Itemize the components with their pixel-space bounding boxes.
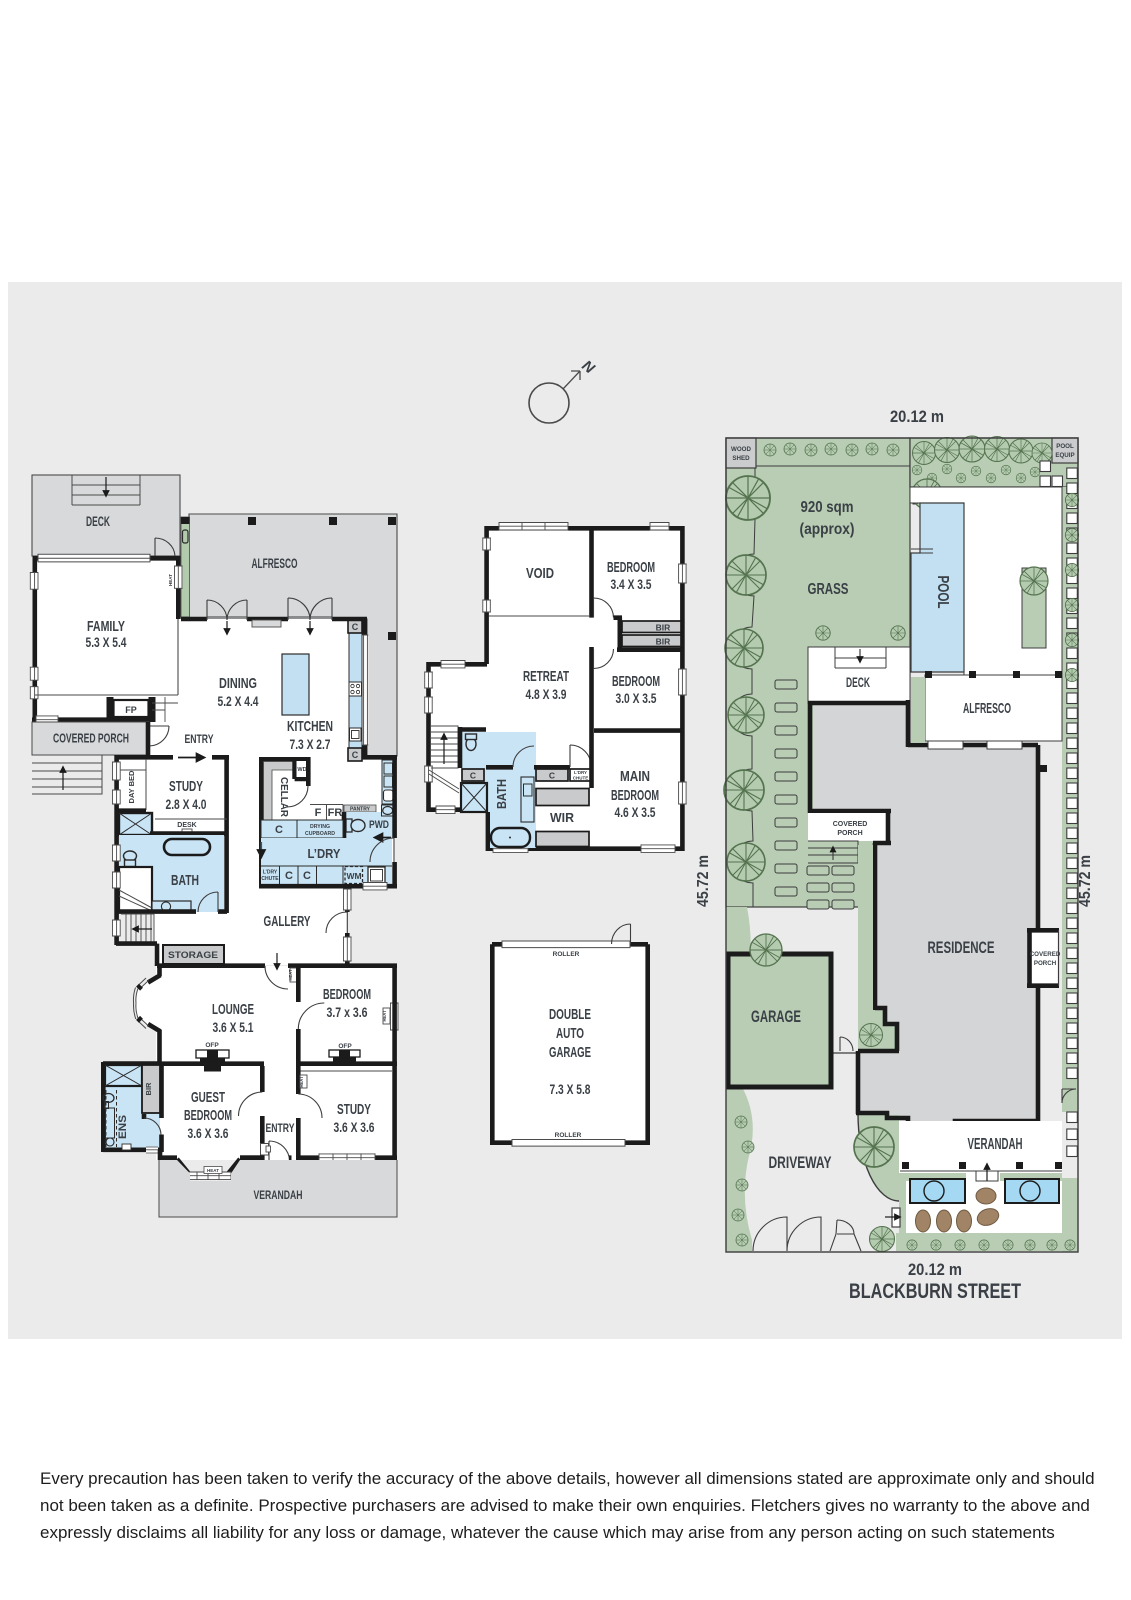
svg-text:ROLLER: ROLLER [555, 1132, 582, 1139]
svg-text:20.12 m: 20.12 m [890, 407, 944, 426]
svg-text:BEDROOM: BEDROOM [607, 559, 655, 576]
svg-text:BIR: BIR [656, 623, 671, 633]
svg-text:MAIN: MAIN [620, 768, 650, 785]
svg-text:RESIDENCE: RESIDENCE [928, 938, 995, 957]
svg-text:WM: WM [346, 871, 361, 881]
svg-text:C: C [275, 824, 283, 836]
svg-text:L’DRY: L’DRY [308, 846, 341, 861]
svg-text:PANTRY: PANTRY [350, 807, 371, 813]
svg-text:L’DRY: L’DRY [263, 870, 278, 876]
svg-text:DESK: DESK [177, 822, 196, 829]
svg-text:BATH: BATH [171, 872, 199, 889]
svg-text:AUTO: AUTO [556, 1025, 584, 1042]
svg-text:20.12 m: 20.12 m [908, 1260, 962, 1279]
svg-text:RETREAT: RETREAT [523, 668, 569, 685]
svg-text:7.3 X 5.8: 7.3 X 5.8 [550, 1082, 591, 1097]
svg-text:5.2 X 4.4: 5.2 X 4.4 [218, 694, 259, 709]
svg-text:FAMILY: FAMILY [87, 618, 125, 635]
svg-text:GALLERY: GALLERY [264, 913, 311, 930]
svg-text:BEDROOM: BEDROOM [184, 1107, 232, 1124]
svg-text:7.3 X 2.7: 7.3 X 2.7 [290, 737, 331, 752]
svg-text:DRYING: DRYING [310, 824, 330, 830]
svg-text:C: C [352, 622, 359, 632]
svg-text:5.3 X 5.4: 5.3 X 5.4 [86, 635, 127, 650]
svg-text:C: C [303, 870, 311, 882]
svg-text:POOL: POOL [934, 576, 951, 609]
svg-text:920 sqm: 920 sqm [801, 499, 854, 516]
svg-text:FR: FR [328, 807, 343, 819]
svg-text:CHUTE: CHUTE [261, 876, 279, 882]
svg-text:C: C [470, 771, 476, 781]
svg-text:GUEST: GUEST [191, 1089, 225, 1106]
svg-text:HEAT: HEAT [382, 1010, 387, 1022]
svg-text:PORCH: PORCH [1034, 960, 1057, 967]
svg-text:OFP: OFP [338, 1043, 352, 1050]
svg-text:L’DRY: L’DRY [574, 770, 587, 775]
svg-text:ENTRY: ENTRY [266, 1123, 295, 1135]
svg-text:KITCHEN: KITCHEN [287, 718, 333, 735]
svg-text:ALFRESCO: ALFRESCO [963, 700, 1011, 717]
svg-text:4.8 X 3.9: 4.8 X 3.9 [526, 687, 567, 702]
svg-text:STUDY: STUDY [337, 1101, 371, 1118]
svg-text:not been taken as a definite.: not been taken as a definite. Prospectiv… [40, 1496, 1090, 1515]
svg-text:C: C [352, 750, 359, 760]
svg-text:3.0 X 3.5: 3.0 X 3.5 [616, 691, 657, 706]
svg-text:FP: FP [125, 705, 137, 715]
svg-text:BATH: BATH [494, 779, 509, 809]
svg-text:3.4 X 3.5: 3.4 X 3.5 [611, 577, 652, 592]
svg-text:GARAGE: GARAGE [751, 1007, 801, 1026]
svg-text:DRIVEWAY: DRIVEWAY [769, 1153, 832, 1172]
svg-text:2.8 X 4.0: 2.8 X 4.0 [166, 797, 207, 812]
svg-text:BIR: BIR [656, 637, 671, 647]
svg-text:PWD: PWD [369, 819, 389, 831]
svg-text:EQUIP: EQUIP [1055, 452, 1074, 459]
svg-text:CHUTE: CHUTE [573, 776, 589, 781]
svg-text:45.72 m: 45.72 m [1077, 855, 1094, 907]
svg-text:GRASS: GRASS [808, 581, 849, 598]
svg-text:STUDY: STUDY [169, 778, 203, 795]
svg-text:DECK: DECK [86, 514, 110, 529]
svg-text:3.6 X 3.6: 3.6 X 3.6 [334, 1120, 375, 1135]
svg-text:ENTRY: ENTRY [185, 734, 214, 746]
svg-text:COVERED: COVERED [1030, 951, 1061, 958]
svg-text:STORAGE: STORAGE [168, 950, 218, 961]
svg-text:POOL: POOL [1056, 443, 1074, 450]
svg-text:BEDROOM: BEDROOM [611, 787, 659, 804]
svg-text:3.6 X 3.6: 3.6 X 3.6 [188, 1126, 229, 1141]
svg-text:HEAT: HEAT [288, 969, 293, 981]
svg-text:WOOD: WOOD [731, 446, 751, 453]
svg-text:C: C [285, 870, 293, 882]
svg-text:expressly disclaims all liabil: expressly disclaims all liability for an… [40, 1523, 1055, 1542]
svg-text:HEAT: HEAT [168, 574, 173, 586]
svg-text:C: C [549, 771, 555, 781]
svg-text:CELLAR: CELLAR [278, 777, 289, 818]
svg-text:DOUBLE: DOUBLE [549, 1006, 591, 1023]
svg-text:COVERED: COVERED [833, 821, 868, 828]
svg-text:Every precaution has been take: Every precaution has been taken to verif… [40, 1469, 1095, 1488]
svg-text:DAY BED: DAY BED [127, 770, 136, 804]
svg-text:3.6 X 5.1: 3.6 X 5.1 [213, 1020, 254, 1035]
svg-text:ROLLER: ROLLER [553, 951, 580, 958]
svg-text:SHED: SHED [732, 455, 750, 462]
svg-text:VERANDAH: VERANDAH [968, 1136, 1023, 1153]
svg-text:BEDROOM: BEDROOM [323, 986, 371, 1003]
svg-text:CUPBOARD: CUPBOARD [305, 831, 335, 837]
svg-text:LOUNGE: LOUNGE [212, 1001, 254, 1018]
svg-text:DECK: DECK [846, 675, 870, 690]
svg-text:PORCH: PORCH [837, 830, 862, 837]
svg-text:45.72 m: 45.72 m [695, 855, 712, 907]
svg-text:F: F [315, 807, 322, 819]
svg-text:HEAT: HEAT [299, 1076, 304, 1088]
svg-text:WD: WD [297, 767, 306, 773]
svg-text:OFP: OFP [205, 1042, 219, 1049]
svg-text:3.7 x 3.6: 3.7 x 3.6 [327, 1005, 368, 1020]
svg-text:ENS: ENS [117, 1115, 129, 1139]
svg-text:ALFRESCO: ALFRESCO [252, 556, 298, 571]
svg-text:(approx): (approx) [800, 521, 855, 538]
svg-text:HEAT: HEAT [207, 1168, 219, 1173]
svg-text:VOID: VOID [526, 565, 554, 582]
svg-text:DINING: DINING [219, 675, 257, 692]
svg-text:GARAGE: GARAGE [549, 1044, 591, 1061]
svg-text:VERANDAH: VERANDAH [254, 1190, 303, 1202]
svg-text:4.6 X 3.5: 4.6 X 3.5 [615, 805, 656, 820]
svg-text:BEDROOM: BEDROOM [612, 673, 660, 690]
svg-text:WIR: WIR [550, 810, 575, 825]
svg-text:BLACKBURN STREET: BLACKBURN STREET [849, 1280, 1021, 1303]
svg-text:BIR: BIR [144, 1082, 153, 1096]
svg-text:COVERED PORCH: COVERED PORCH [53, 732, 129, 746]
